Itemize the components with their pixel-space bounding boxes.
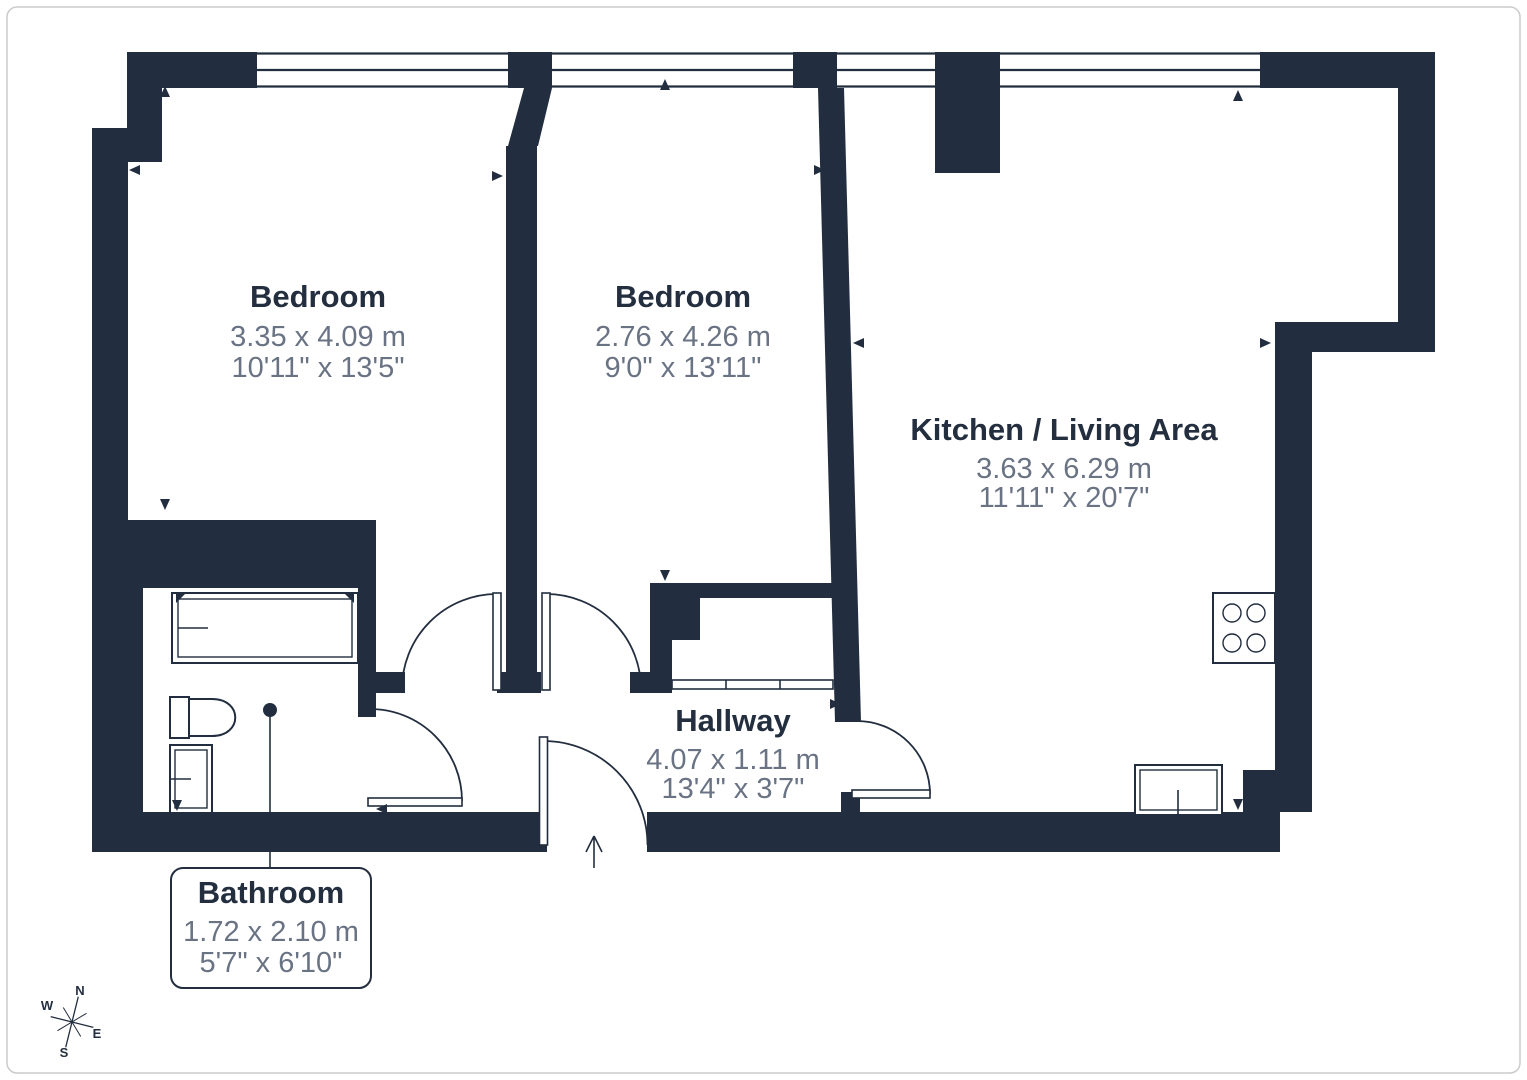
room-name: Bedroom [250,279,386,314]
room-dim-imperial: 5'7" x 6'10" [200,947,343,979]
compass-rose: N E S W [41,983,102,1060]
hob-icon [1213,593,1275,663]
room-name: Kitchen / Living Area [910,412,1218,447]
label-connector-dot [263,703,277,717]
wall-segment [647,812,1280,852]
closet-front [672,680,833,689]
compass-west: W [41,998,54,1013]
entry-arrow-icon [586,836,602,868]
room-dim-metric: 3.35 x 4.09 m [230,321,406,353]
bathtub-icon [172,593,358,663]
windows [257,52,1260,88]
room-dim-imperial: 13'4" x 3'7" [662,773,805,805]
window-bedroom2 [552,52,793,88]
door-arc-bathroom [370,709,462,801]
floorplan-page: Bedroom 3.35 x 4.09 m 10'11" x 13'5" Bed… [0,0,1527,1080]
toilet-icon [170,697,235,738]
wall-segment [650,583,672,682]
door-arc-bedroom1 [402,594,497,689]
label-bedroom-2: Bedroom 2.76 x 4.26 m 9'0" x 13'11" [595,279,771,384]
dim-arrow-up [1233,90,1243,101]
wall-segment [1275,352,1312,812]
room-dim-imperial: 10'11" x 13'5" [231,352,404,384]
dim-arrow-right [492,171,503,181]
wall-segment [358,672,405,693]
door-leaf-kitchen [852,790,930,798]
window-kitchen-right [1000,52,1260,88]
door-leaf-entrance [540,737,548,845]
wall-segment [1275,322,1435,352]
room-dim-metric: 2.76 x 4.26 m [595,321,771,353]
window-kitchen-left [837,52,935,88]
door-leaf-bedroom2 [542,593,550,690]
toilet-cistern [170,697,189,738]
wall-segment [630,672,672,693]
hob-outer [1213,593,1275,663]
room-name: Hallway [675,703,791,738]
dim-arrow-left [129,165,140,175]
label-bathroom: Bathroom 1.72 x 2.10 m 5'7" x 6'10" [171,868,371,988]
wall-segment [497,672,541,693]
wall-segment [818,88,861,722]
wall-segment [672,598,700,640]
dim-arrow-down [660,570,670,581]
room-dim-metric: 4.07 x 1.11 m [646,744,820,776]
room-name: Bedroom [615,279,751,314]
dim-arrow-down [1233,799,1243,810]
label-bedroom-1: Bedroom 3.35 x 4.09 m 10'11" x 13'5" [230,279,406,384]
compass-spoke [57,1007,86,1036]
compass-north: N [75,983,84,998]
floorplan-drawing: Bedroom 3.35 x 4.09 m 10'11" x 13'5" Bed… [0,0,1527,1080]
wall-segment [935,52,1000,173]
wall-segment [1398,52,1435,352]
door-leaf-bedroom1 [493,593,501,690]
wall-segment [92,812,547,852]
toilet-bowl [189,699,235,736]
wall-segment [508,88,552,146]
door-arc-kitchen [857,721,930,794]
wall-segment [128,520,376,588]
door-arc-bedroom2 [546,594,641,689]
wall-segment [358,588,376,717]
label-kitchen-living: Kitchen / Living Area 3.63 x 6.29 m 11'1… [910,412,1218,514]
wall-segment [127,52,162,162]
compass-south: S [60,1045,69,1060]
wall-segment [1243,770,1312,812]
door-arc-entrance [544,741,648,845]
wall-segment [650,583,840,598]
window-bedroom1 [257,52,508,88]
dim-arrow-down [160,499,170,510]
wall-segment [508,52,552,88]
dim-arrow-left [853,338,864,348]
dim-arrow-right [1260,338,1271,348]
wall-segment [793,52,837,88]
compass-east: E [93,1026,102,1041]
room-dim-imperial: 9'0" x 13'11" [605,352,762,384]
room-dim-metric: 1.72 x 2.10 m [183,916,359,948]
wall-segment [506,146,537,672]
closet-sliding-door [672,680,833,689]
room-dim-metric: 3.63 x 6.29 m [976,453,1152,485]
wall-segment [92,128,128,588]
room-name: Bathroom [198,875,344,910]
room-dim-imperial: 11'11" x 20'7" [979,482,1150,514]
kitchen-sink-icon [1135,765,1222,815]
door-leaf-bathroom [368,798,462,806]
label-hallway: Hallway 4.07 x 1.11 m 13'4" x 3'7" [646,703,820,805]
